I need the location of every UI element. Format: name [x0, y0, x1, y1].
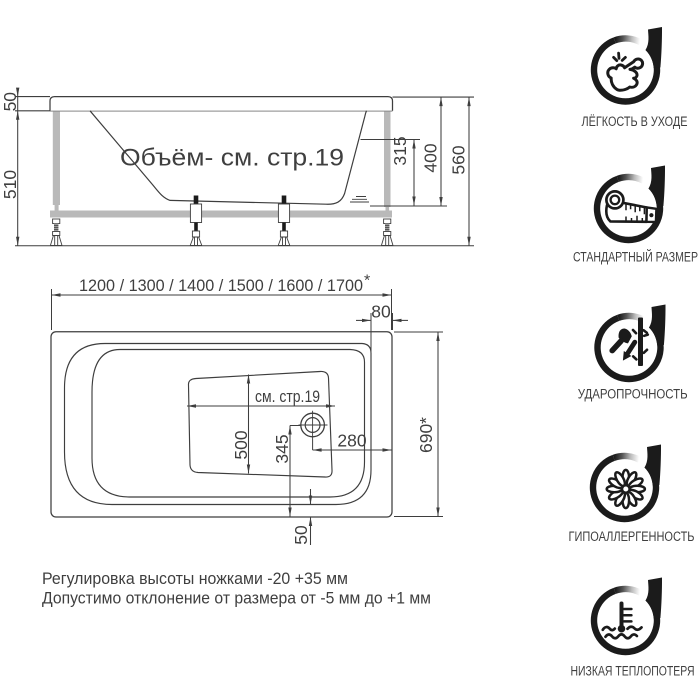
- svg-text:50: 50: [0, 92, 20, 112]
- svg-text:СТАНДАРТНЫЙ РАЗМЕР: СТАНДАРТНЫЙ РАЗМЕР: [573, 248, 698, 266]
- svg-text:ЛЁГКОСТЬ В УХОДЕ: ЛЁГКОСТЬ В УХОДЕ: [582, 113, 688, 130]
- svg-text:345: 345: [272, 434, 292, 463]
- svg-text:*: *: [364, 273, 370, 290]
- svg-text:500: 500: [231, 430, 251, 459]
- svg-text:80: 80: [371, 302, 391, 322]
- svg-text:50: 50: [291, 525, 311, 545]
- svg-text:Регулировка высоты ножками -20: Регулировка высоты ножками -20 +35 мм: [42, 570, 348, 588]
- svg-text:690*: 690*: [416, 417, 436, 453]
- svg-text:560: 560: [449, 145, 469, 174]
- svg-text:Допустимо отклонение от размер: Допустимо отклонение от размера от -5 мм…: [42, 590, 431, 608]
- svg-text:см. стр.19: см. стр.19: [255, 388, 320, 406]
- svg-text:315: 315: [390, 136, 410, 165]
- svg-text:ГИПОАЛЛЕРГЕННОСТЬ: ГИПОАЛЛЕРГЕННОСТЬ: [569, 529, 695, 545]
- svg-text:280: 280: [337, 431, 366, 451]
- svg-text:1200 / 1300 / 1400 / 1500 / 16: 1200 / 1300 / 1400 / 1500 / 1600 / 1700: [79, 276, 363, 295]
- svg-text:400: 400: [421, 143, 441, 172]
- svg-text:УДАРОПРОЧНОСТЬ: УДАРОПРОЧНОСТЬ: [578, 387, 688, 403]
- svg-text:Объём- см. стр.19: Объём- см. стр.19: [120, 145, 344, 172]
- svg-text:НИЗКАЯ ТЕПЛОПОТЕРЯ: НИЗКАЯ ТЕПЛОПОТЕРЯ: [571, 664, 695, 680]
- svg-text:510: 510: [0, 170, 20, 199]
